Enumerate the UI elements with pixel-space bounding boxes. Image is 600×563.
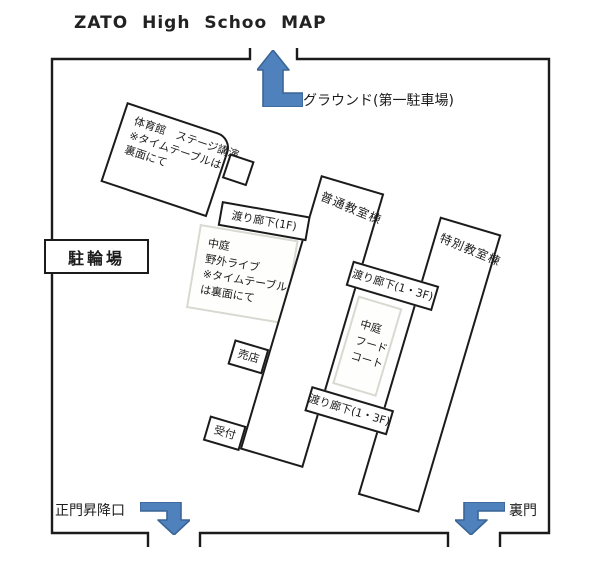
building-special-classroom-label: 特別教室棟	[437, 229, 504, 270]
school-map: ZATO High Schoo MAP 中庭 野外ライブ ※タイムテーブル は裏…	[0, 0, 600, 563]
ground-gate-label: グラウンド(第一駐車場)	[303, 90, 454, 110]
building-regular-classroom-label: 普通教室棟	[318, 188, 385, 229]
down-arrow-back-gate-icon	[455, 502, 505, 535]
shop-label: 売店	[236, 346, 261, 367]
courtyard-outdoor-live-label: 中庭 野外ライブ ※タイムテーブル は裏面にて	[199, 236, 293, 312]
reception-label: 受付	[212, 423, 237, 444]
main-gate-label: 正門昇降口	[55, 500, 125, 520]
down-arrow-main-gate-icon	[140, 502, 190, 535]
back-gate-label: 裏門	[509, 500, 537, 520]
bike-parking: 駐輪場	[44, 239, 149, 274]
bike-parking-label: 駐輪場	[68, 245, 125, 269]
up-arrow-icon	[257, 50, 303, 107]
